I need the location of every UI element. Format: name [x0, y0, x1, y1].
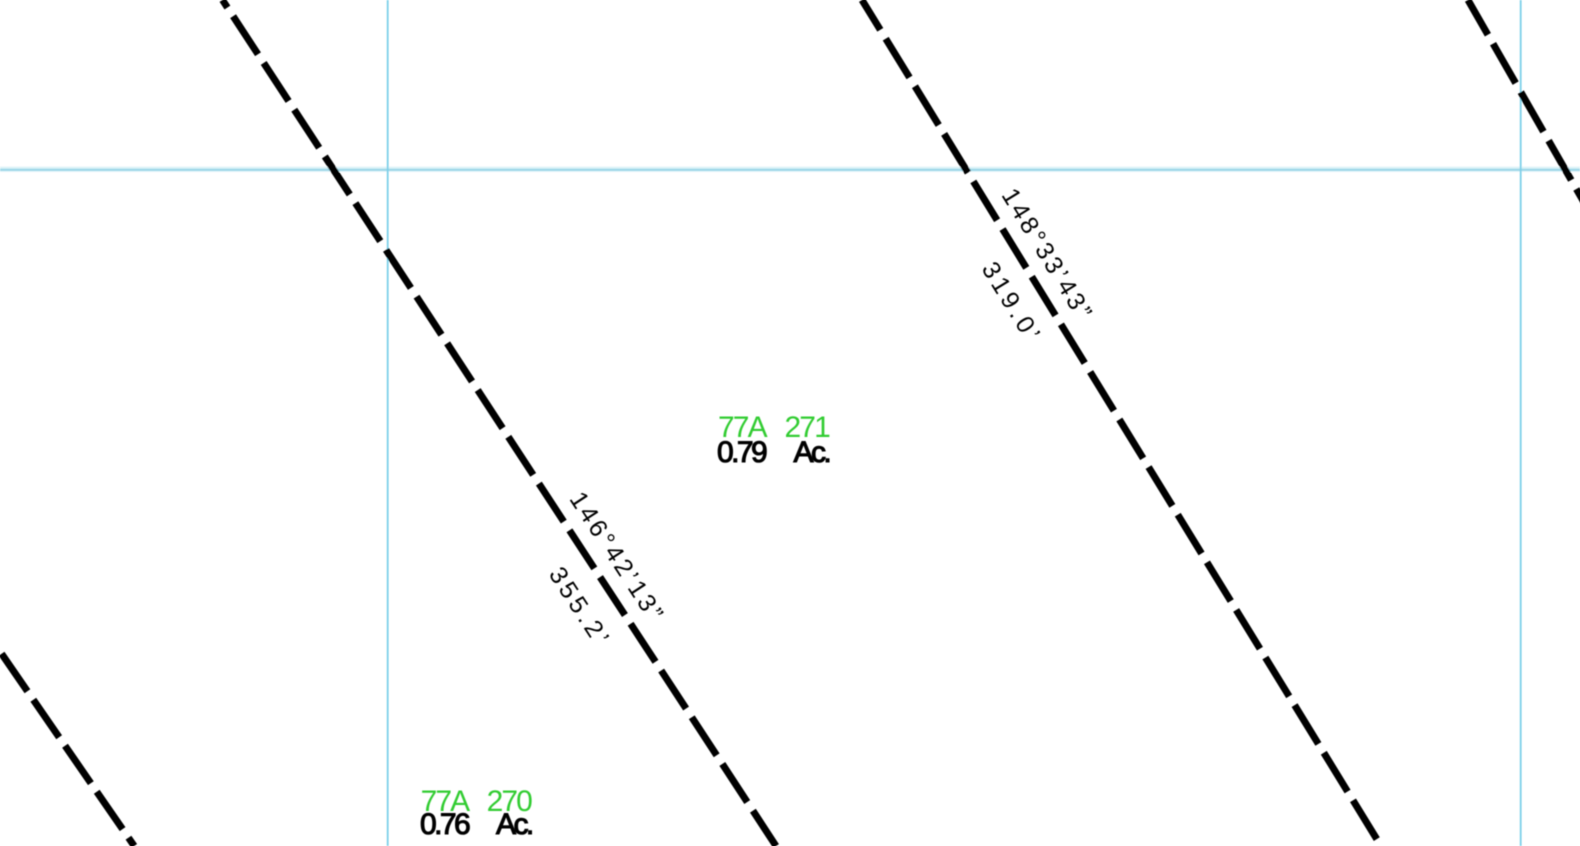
svg-text:0.76: 0.76 — [420, 808, 470, 841]
svg-text:Ac.: Ac. — [794, 436, 830, 469]
svg-text:Ac.: Ac. — [496, 808, 532, 841]
svg-text:0.79: 0.79 — [717, 436, 767, 469]
